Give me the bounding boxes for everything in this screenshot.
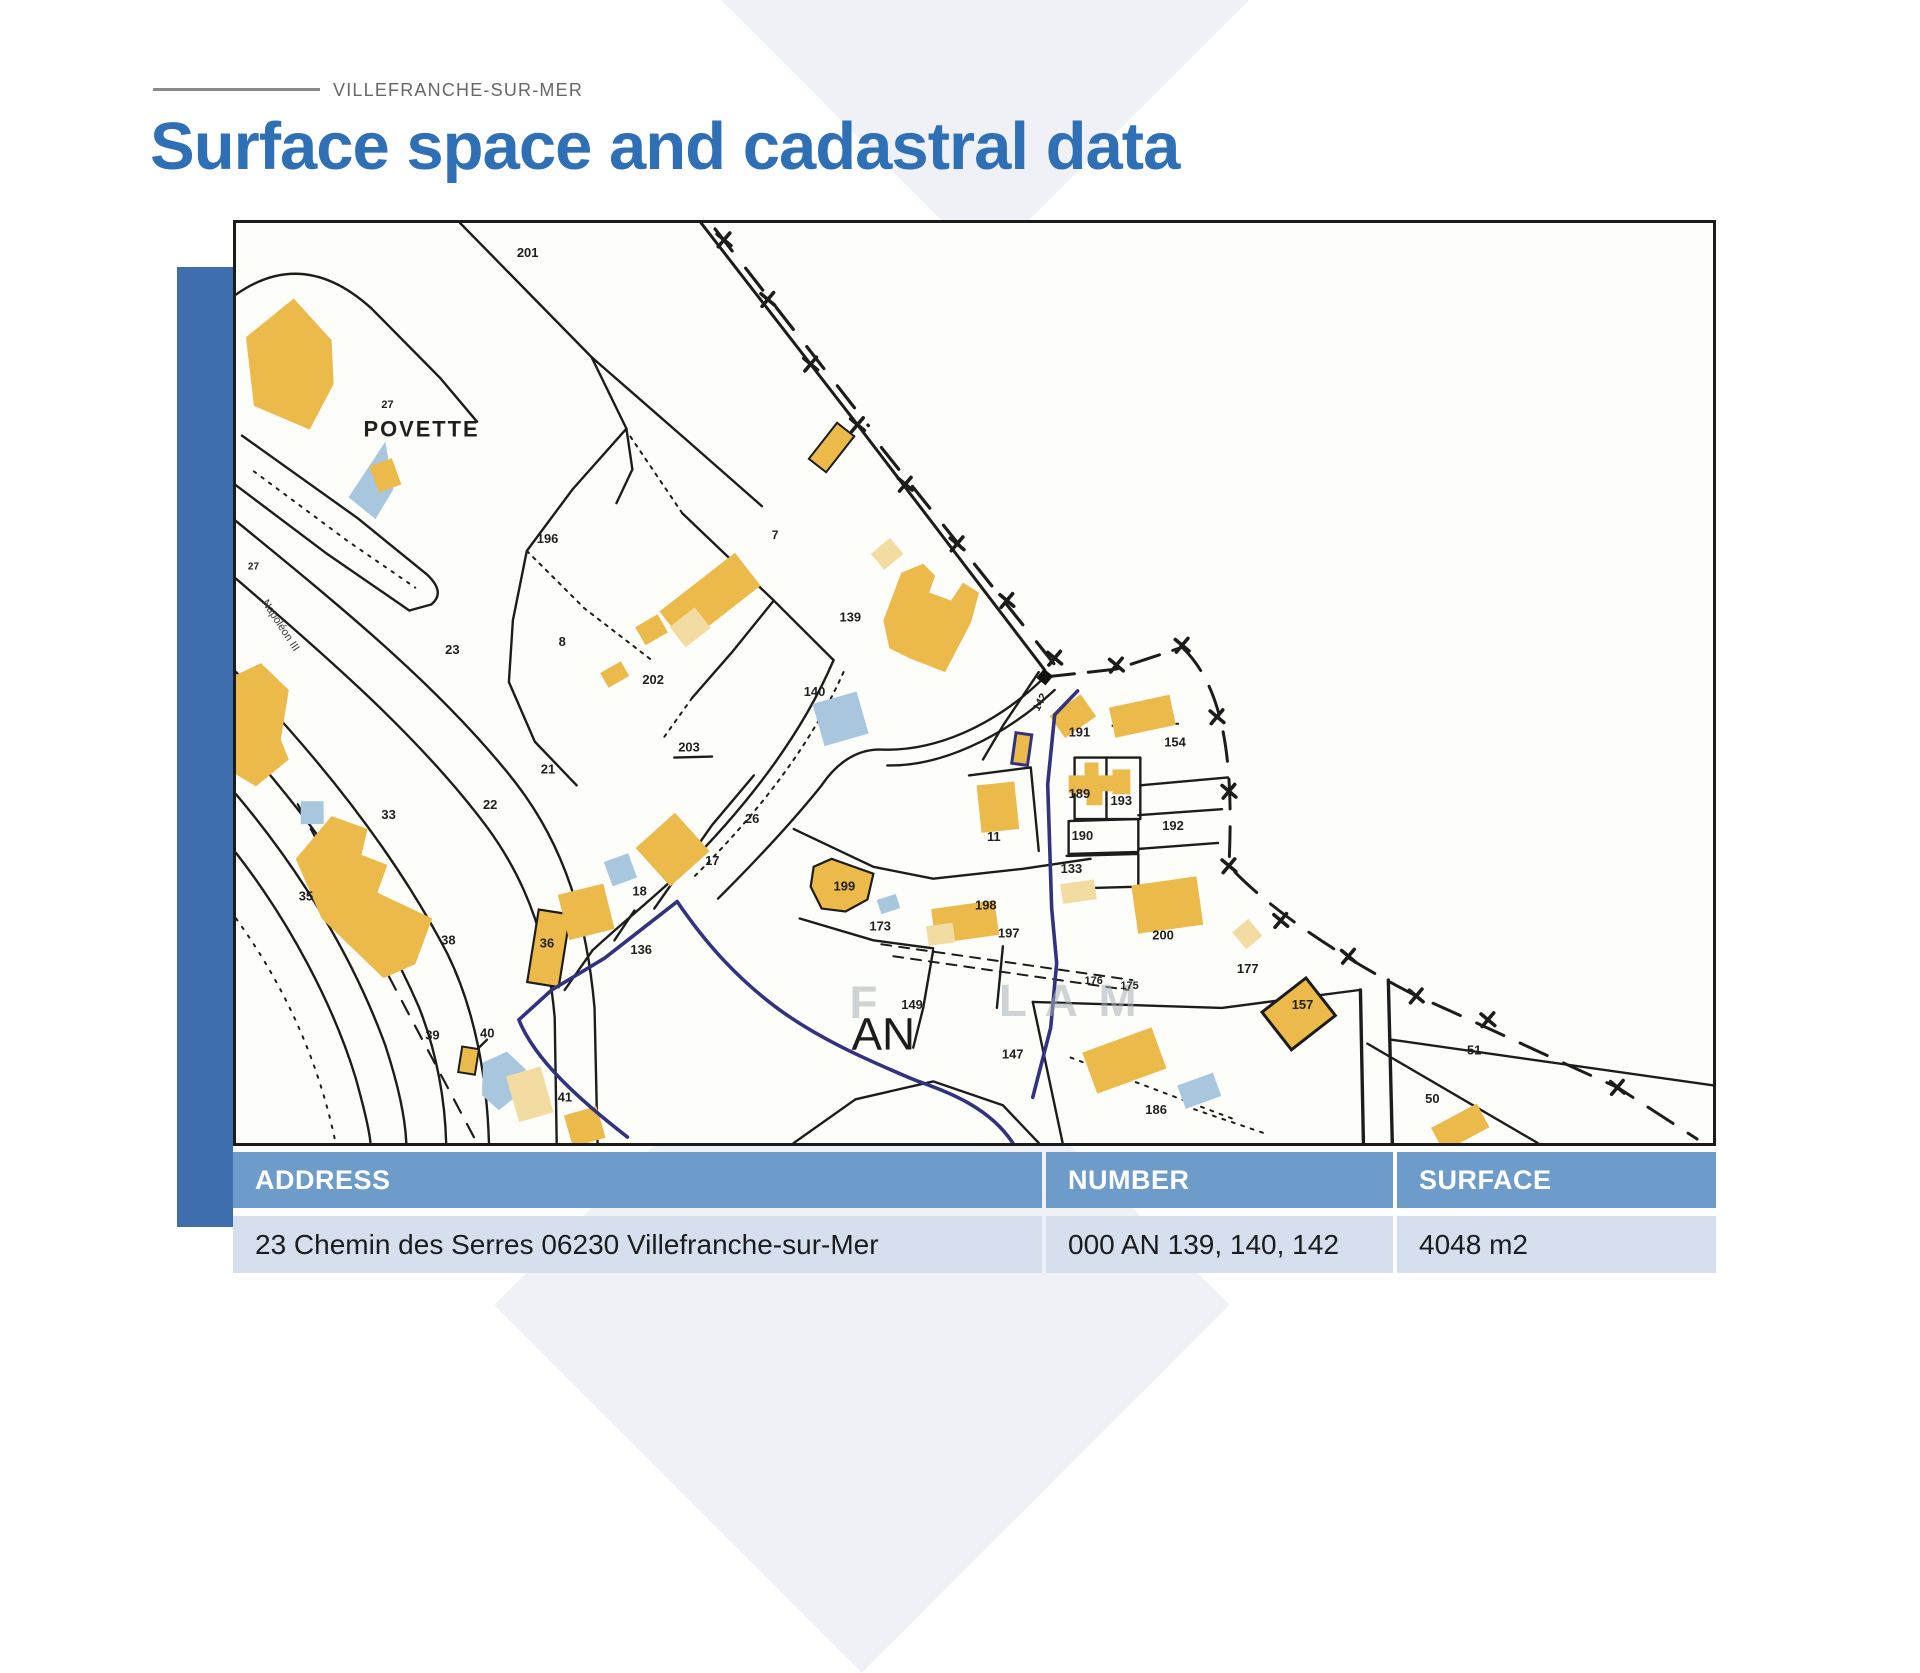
parcel-label: 41 — [558, 1089, 572, 1104]
parcel-label: 27 — [248, 562, 260, 573]
boundary-crosses — [711, 227, 1630, 1100]
column-header-number: NUMBER — [1046, 1152, 1393, 1208]
parcel-label: 23 — [445, 642, 459, 657]
parcel-label: 177 — [1237, 961, 1259, 976]
parcel-label: 50 — [1425, 1091, 1439, 1106]
parcel-label: 199 — [834, 879, 856, 894]
parcel-label: 190 — [1072, 828, 1094, 843]
parcel-label: 193 — [1110, 793, 1132, 808]
boundary-cross-icon — [1336, 944, 1361, 969]
parcel-label: 197 — [998, 925, 1020, 940]
parcel-label: 136 — [630, 942, 652, 957]
parcel-label: 26 — [745, 811, 759, 826]
header-rule — [153, 88, 320, 91]
watermark-letter: L — [999, 975, 1027, 1026]
parcel-label: 36 — [540, 935, 554, 950]
boundary-cross-icon — [1605, 1075, 1630, 1100]
cadastral-map-svg: FLAM POVETTE AN Napoléon III 20127713914… — [236, 223, 1713, 1143]
parcel-label: 186 — [1145, 1102, 1167, 1117]
parcel-label: 191 — [1069, 725, 1091, 740]
parcel-label: 176 — [1085, 975, 1103, 987]
parcel-label: 33 — [381, 807, 395, 822]
street-label: Napoléon III — [259, 598, 301, 654]
place-label: POVETTE — [363, 417, 479, 442]
parcel-label: 17 — [705, 853, 719, 868]
table-header-row: ADDRESS NUMBER SURFACE — [233, 1152, 1716, 1208]
parcel-number-value: 000 AN 139, 140, 142 — [1046, 1216, 1393, 1273]
parcel-label: 201 — [517, 245, 539, 260]
parcel-label: 189 — [1069, 786, 1091, 801]
boundary-cross-icon — [1104, 653, 1129, 678]
table-row: 23 Chemin des Serres 06230 Villefranche-… — [233, 1216, 1716, 1273]
parcel-label: 192 — [1162, 818, 1184, 833]
parcel-label: 140 — [804, 684, 826, 699]
parcel-label: 8 — [559, 634, 566, 649]
address-value: 23 Chemin des Serres 06230 Villefranche-… — [233, 1216, 1042, 1273]
parcel-label: 38 — [441, 932, 455, 947]
parcel-label: 157 — [1292, 997, 1314, 1012]
parcel-label: 18 — [632, 884, 646, 899]
parcel-label: 198 — [975, 898, 997, 913]
boundary-cross-icon — [1170, 633, 1195, 658]
cadastral-map: FLAM POVETTE AN Napoléon III 20127713914… — [233, 220, 1716, 1146]
parcel-label: 21 — [541, 761, 555, 776]
accent-bar — [177, 267, 233, 1227]
parcel-label: 51 — [1467, 1043, 1481, 1058]
section-label: AN — [851, 1009, 915, 1060]
parcel-label: 133 — [1061, 861, 1083, 876]
parcel-lines — [236, 223, 1713, 1143]
parcel-label: 202 — [642, 672, 664, 687]
parcel-label: 196 — [537, 531, 559, 546]
parcel-label: 142 — [1031, 691, 1050, 713]
parcel-label: 39 — [425, 1028, 439, 1043]
parcel-label: 139 — [840, 609, 862, 624]
parcel-label: 173 — [869, 918, 891, 933]
surface-value: 4048 m2 — [1397, 1216, 1716, 1273]
page-title: Surface space and cadastral data — [150, 108, 1179, 185]
parcel-label: 154 — [1164, 735, 1186, 750]
column-header-address: ADDRESS — [233, 1152, 1042, 1208]
boundary-cross-icon — [1404, 983, 1429, 1008]
boundary-cross-icon — [1042, 646, 1067, 671]
parcel-label: 203 — [678, 740, 700, 755]
column-header-surface: SURFACE — [1397, 1152, 1716, 1208]
location-eyebrow: VILLEFRANCHE-SUR-MER — [333, 80, 583, 101]
parcel-label: 7 — [772, 528, 779, 542]
parcel-label: 35 — [299, 889, 313, 904]
watermark-letter: A — [1045, 975, 1078, 1026]
parcel-label: 175 — [1120, 980, 1138, 992]
parcel-label: 11 — [987, 829, 1001, 844]
parcel-label: 40 — [480, 1026, 494, 1041]
parcel-label: 27 — [381, 399, 393, 411]
parcel-label: 147 — [1002, 1047, 1024, 1062]
parcel-label: 149 — [901, 997, 923, 1012]
cadastral-table: ADDRESS NUMBER SURFACE 23 Chemin des Ser… — [233, 1152, 1716, 1273]
parcel-label: 22 — [483, 797, 497, 812]
parcel-label: 200 — [1152, 927, 1174, 942]
